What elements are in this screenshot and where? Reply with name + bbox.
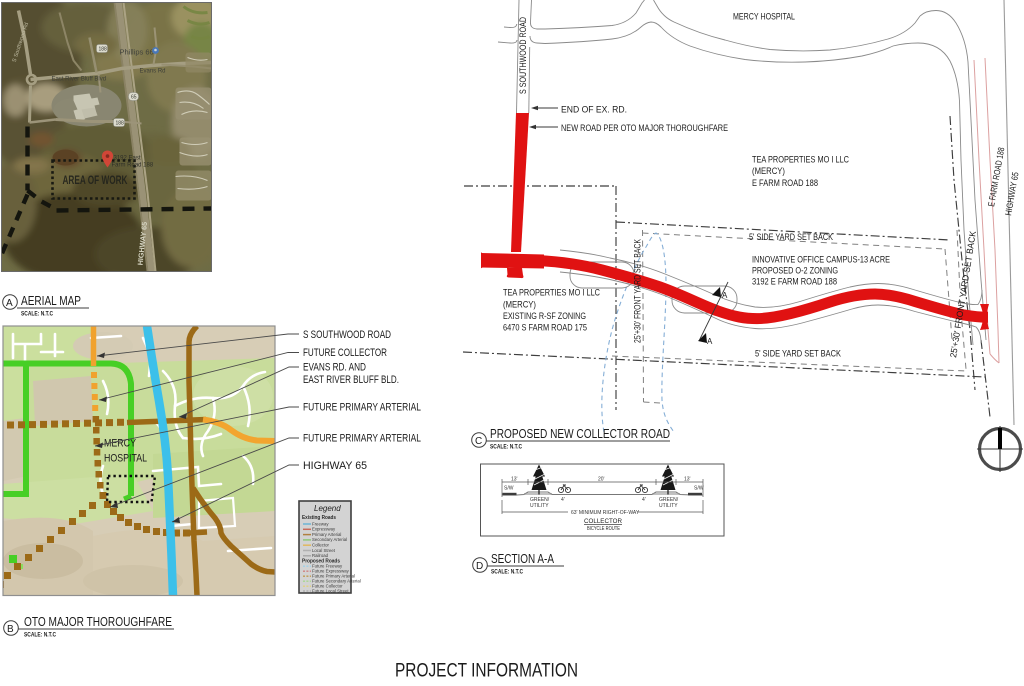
- svg-text:SCALE: N.T.C: SCALE: N.T.C: [491, 569, 523, 576]
- svg-text:3192 E FARM ROAD 188: 3192 E FARM ROAD 188: [752, 276, 837, 286]
- svg-text:4': 4': [561, 497, 565, 503]
- svg-text:COLLECTOR: COLLECTOR: [584, 518, 622, 525]
- svg-text:UTILITY: UTILITY: [530, 503, 549, 509]
- svg-text:63' MINIMUM RIGHT-OF-WAY: 63' MINIMUM RIGHT-OF-WAY: [571, 510, 640, 516]
- svg-text:EVANS RD. AND: EVANS RD. AND: [303, 362, 366, 374]
- svg-text:A: A: [707, 337, 713, 346]
- svg-text:Future Local Street: Future Local Street: [312, 588, 349, 593]
- svg-text:25'+30' FRONT YARD SET BACK: 25'+30' FRONT YARD SET BACK: [948, 230, 978, 358]
- svg-text:PROPOSED NEW COLLECTOR ROAD: PROPOSED NEW COLLECTOR ROAD: [490, 427, 670, 441]
- svg-text:Freeway: Freeway: [312, 521, 329, 526]
- svg-text:HIGHWAY 65: HIGHWAY 65: [1003, 171, 1020, 216]
- svg-text:(MERCY): (MERCY): [503, 299, 536, 309]
- svg-text:SCALE: N.T.C: SCALE: N.T.C: [24, 632, 56, 639]
- svg-text:20': 20': [598, 477, 605, 483]
- svg-text:5' SIDE YARD SET BACK: 5' SIDE YARD SET BACK: [755, 349, 841, 359]
- svg-text:SCALE: N.T.C: SCALE: N.T.C: [490, 444, 522, 451]
- svg-text:EAST RIVER BLUFF BLD.: EAST RIVER BLUFF BLD.: [303, 374, 399, 386]
- svg-text:FUTURE PRIMARY ARTERIAL: FUTURE PRIMARY ARTERIAL: [303, 402, 421, 414]
- svg-text:Secondary Arterial: Secondary Arterial: [312, 537, 347, 542]
- svg-text:PROJECT INFORMATION: PROJECT INFORMATION: [395, 660, 578, 682]
- svg-text:SECTION A-A: SECTION A-A: [491, 552, 555, 566]
- svg-text:Collector: Collector: [312, 543, 330, 548]
- svg-text:NEW ROAD PER OTO MAJOR THOROUG: NEW ROAD PER OTO MAJOR THOROUGHFARE: [561, 123, 728, 133]
- svg-text:AERIAL MAP: AERIAL MAP: [21, 294, 81, 308]
- svg-text:FUTURE PRIMARY ARTERIAL: FUTURE PRIMARY ARTERIAL: [303, 433, 421, 445]
- svg-text:HIGHWAY 65: HIGHWAY 65: [303, 460, 367, 472]
- svg-text:Existing Roads: Existing Roads: [302, 515, 336, 521]
- svg-text:4': 4': [642, 497, 646, 503]
- svg-text:5' SIDE YARD SET BACK: 5' SIDE YARD SET BACK: [749, 232, 833, 242]
- svg-text:INNOVATIVE OFFICE CAMPUS-13 AC: INNOVATIVE OFFICE CAMPUS-13 ACRE: [752, 255, 890, 265]
- svg-text:13': 13': [684, 477, 691, 483]
- svg-text:B: B: [7, 624, 14, 635]
- svg-text:S SOUTHWOOD ROAD: S SOUTHWOOD ROAD: [303, 329, 391, 341]
- svg-text:Expressway: Expressway: [312, 527, 336, 532]
- svg-text:HOSPITAL: HOSPITAL: [104, 453, 147, 465]
- svg-text:MERCY HOSPITAL: MERCY HOSPITAL: [733, 12, 795, 22]
- svg-text:A: A: [722, 291, 728, 300]
- svg-text:Legend: Legend: [314, 504, 341, 513]
- svg-text:13': 13': [511, 477, 518, 483]
- svg-text:Local Street: Local Street: [312, 548, 336, 553]
- svg-text:TEA PROPERTIES MO I LLC: TEA PROPERTIES MO I LLC: [752, 155, 849, 165]
- svg-text:TEA PROPERTIES MO I LLC: TEA PROPERTIES MO I LLC: [503, 288, 600, 298]
- svg-text:25'+30' FRONT YARD SET BACK: 25'+30' FRONT YARD SET BACK: [633, 239, 643, 343]
- svg-text:FUTURE COLLECTOR: FUTURE COLLECTOR: [303, 347, 387, 359]
- svg-text:SCALE: N.T.C: SCALE: N.T.C: [21, 311, 53, 318]
- svg-text:UTILITY: UTILITY: [659, 503, 678, 509]
- svg-text:C: C: [475, 436, 482, 447]
- svg-text:S/W: S/W: [694, 486, 704, 492]
- svg-text:6470 S FARM ROAD 175: 6470 S FARM ROAD 175: [503, 323, 587, 333]
- svg-text:OTO MAJOR THOROUGHFARE: OTO MAJOR THOROUGHFARE: [24, 615, 172, 629]
- svg-text:E FARM ROAD 188: E FARM ROAD 188: [752, 178, 818, 188]
- svg-text:EXISTING R-SF ZONING: EXISTING R-SF ZONING: [503, 311, 586, 321]
- svg-text:Railroad: Railroad: [312, 553, 329, 558]
- svg-text:D: D: [476, 561, 483, 572]
- svg-text:END OF EX. RD.: END OF EX. RD.: [561, 105, 627, 115]
- svg-text:S/W: S/W: [504, 486, 514, 492]
- svg-text:E FARM ROAD 188: E FARM ROAD 188: [986, 147, 1006, 208]
- svg-text:(MERCY): (MERCY): [752, 166, 785, 176]
- svg-text:PROPOSED O-2 ZONING: PROPOSED O-2 ZONING: [752, 266, 838, 276]
- svg-text:A: A: [6, 298, 13, 309]
- svg-text:S SOUTHWOOD ROAD: S SOUTHWOOD ROAD: [518, 17, 528, 94]
- svg-text:BICYCLE ROUTE: BICYCLE ROUTE: [587, 526, 621, 532]
- svg-text:Primary Arterial: Primary Arterial: [312, 532, 341, 537]
